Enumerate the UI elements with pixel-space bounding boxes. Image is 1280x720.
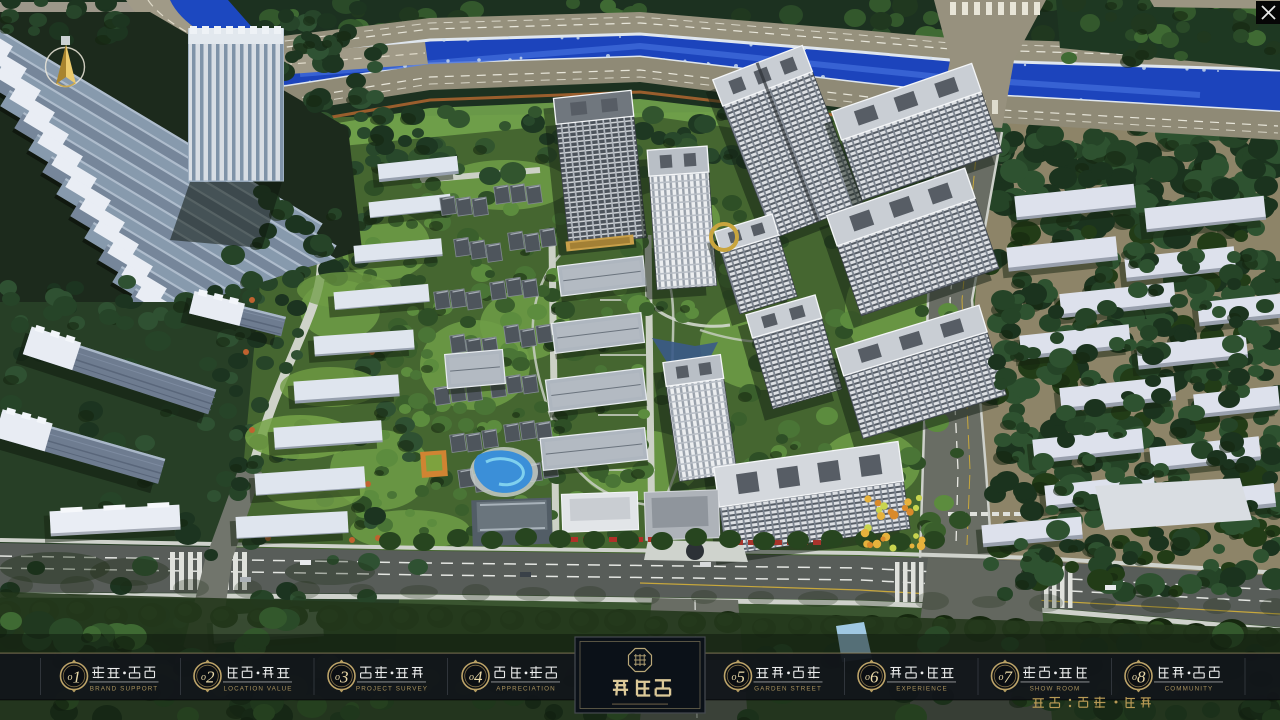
- svg-text:EXPERIENCE: EXPERIENCE: [896, 686, 948, 693]
- svg-text:SHOW ROOM: SHOW ROOM: [1030, 686, 1081, 693]
- svg-text:1: 1: [73, 668, 82, 687]
- svg-text:BRAND SUPPORT: BRAND SUPPORT: [90, 686, 158, 693]
- svg-text:5: 5: [737, 668, 746, 687]
- svg-text:3: 3: [339, 668, 349, 687]
- svg-text:8: 8: [1137, 668, 1146, 687]
- svg-text:COMMUNITY: COMMUNITY: [1165, 686, 1214, 693]
- svg-text:APPRECIATION: APPRECIATION: [496, 686, 556, 693]
- svg-text:GARDEN STREET: GARDEN STREET: [754, 686, 822, 693]
- svg-text:LOCATION VALUE: LOCATION VALUE: [223, 686, 292, 693]
- svg-text:4: 4: [474, 668, 483, 687]
- svg-text:6: 6: [870, 668, 879, 687]
- svg-text:PROJECT SURVEY: PROJECT SURVEY: [356, 686, 428, 693]
- svg-text:2: 2: [206, 668, 215, 687]
